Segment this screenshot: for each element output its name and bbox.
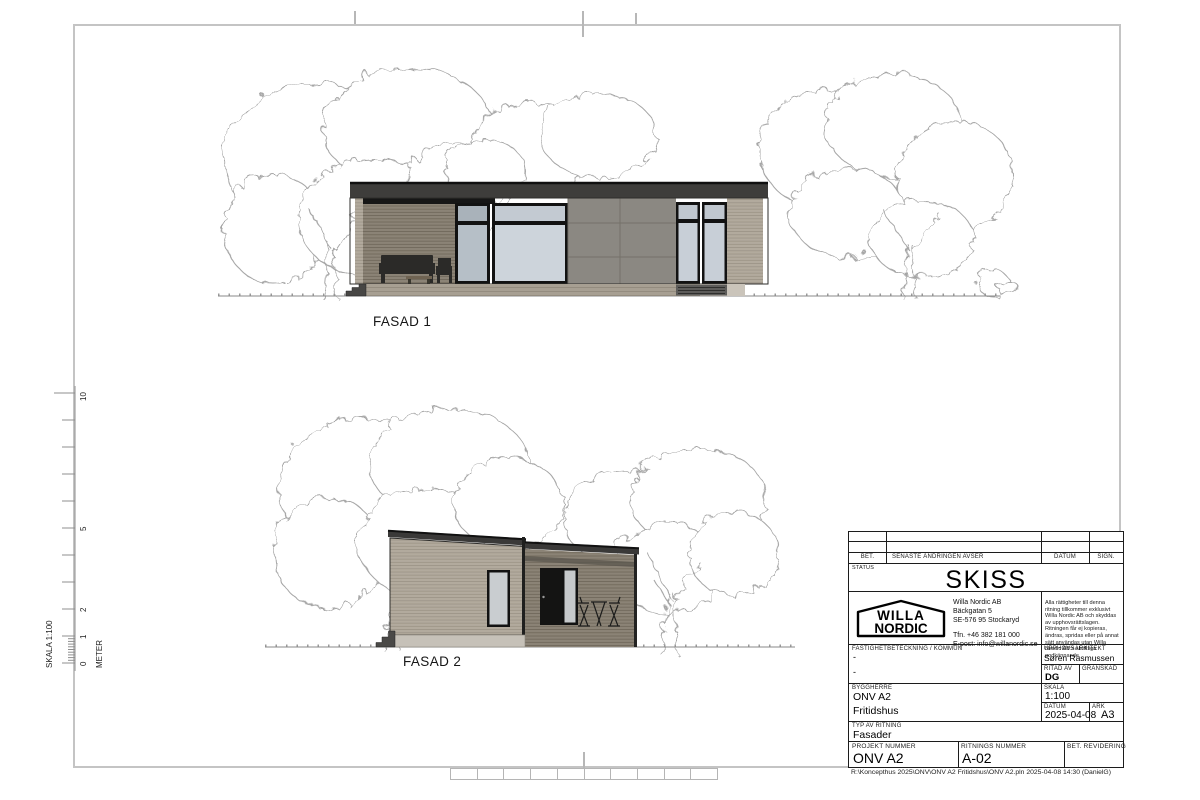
- ruler-unit-label: METER: [95, 640, 104, 668]
- revision-col-datum: DATUM: [1041, 554, 1089, 560]
- fasad-1-label: FASAD 1: [373, 314, 431, 329]
- company-email: E-post: info@willanordic.se: [953, 640, 1038, 649]
- entry-steps: [376, 631, 395, 647]
- window: [702, 202, 727, 284]
- ritningsnummer-label: RITNINGS NUMMER: [961, 743, 1026, 750]
- company-name: Willa Nordic AB: [953, 598, 1038, 607]
- ruler-tick-0: 0: [79, 661, 88, 666]
- ritningsnummer-value: A-02: [962, 750, 992, 766]
- fastighet-value-1: -: [853, 652, 856, 662]
- trim-mark: [583, 752, 585, 768]
- fasad-2-drawing: [230, 390, 830, 680]
- ruler-tick-10: 10: [79, 392, 88, 401]
- ruler-scale-label: SKALA 1:100: [45, 620, 54, 668]
- drawing-sheet: 10 5 2 1 0 METER SKALA 1:100: [0, 0, 1200, 800]
- bet-revidering-label: BET. REVIDERING: [1067, 743, 1126, 750]
- file-path-footer: R:\Koncepthus 2025\ONV\ONV A2 Fritidshus…: [840, 769, 1122, 776]
- trim-mark: [635, 13, 637, 24]
- fasad-1-house: [346, 182, 768, 296]
- title-block: BET. SENASTE ÄNDRINGEN AVSER DATUM SIGN.…: [848, 531, 1124, 768]
- fasad-2-label: FASAD 2: [403, 654, 461, 669]
- ruler-tick-1: 1: [79, 634, 88, 639]
- entry-door: [540, 568, 562, 625]
- sidelight-window: [562, 568, 578, 625]
- datum-value: 2025-04-08: [1045, 710, 1096, 721]
- ruler-tick-5: 5: [79, 526, 88, 531]
- revision-col-sign: SIGN.: [1089, 554, 1123, 560]
- fasad-1-drawing: [200, 40, 1020, 310]
- company-city: SE-576 95 Stockaryd: [953, 616, 1038, 625]
- company-phone: Tfn. +46 382 181 000: [953, 631, 1038, 640]
- fasad-2-house: [376, 530, 639, 647]
- corner-post: [634, 554, 637, 647]
- typ-value: Fasader: [853, 729, 892, 741]
- roof: [350, 182, 768, 198]
- foundation: [393, 635, 525, 647]
- revision-col-change: SENASTE ÄNDRINGEN AVSER: [892, 554, 984, 560]
- fastighet-value-2: -: [853, 667, 856, 677]
- door-handle: [542, 596, 544, 598]
- scale-ruler: 10 5 2 1 0 METER SKALA 1:100: [40, 378, 112, 678]
- graphic-scale-bar: [450, 768, 718, 780]
- ark-value: A3: [1101, 709, 1114, 721]
- ritad-av-value: DG: [1045, 672, 1059, 683]
- window: [455, 203, 490, 284]
- trim-mark: [582, 11, 584, 37]
- window: [492, 203, 568, 284]
- logo-text-2: NORDIC: [874, 621, 927, 636]
- fastighet-label: FASTIGHETBETECKNING / KOMMUN: [852, 646, 962, 652]
- willa-nordic-logo: WILLA NORDIC: [856, 598, 946, 638]
- granskad-label: GRANSKAD: [1082, 666, 1117, 672]
- revision-col-bet: BET.: [849, 554, 886, 560]
- status-value: SKISS: [849, 566, 1123, 595]
- projekt-label: PROJEKT NUMMER: [852, 743, 916, 750]
- panel-facade: [568, 198, 676, 284]
- upphovsarkitekt-label: UPPHOVSARKITEKT: [1044, 646, 1106, 652]
- entry-steps: [346, 284, 366, 296]
- window: [676, 202, 700, 284]
- byggherre-value-2: Fritidshus: [853, 705, 899, 717]
- ruler-tick-2: 2: [79, 607, 88, 612]
- byggherre-value-1: ONV A2: [853, 691, 891, 703]
- window: [487, 570, 510, 627]
- upphovsarkitekt-value: Søren Rasmussen: [1044, 653, 1114, 663]
- trim-mark: [354, 11, 356, 24]
- skala-value: 1:100: [1045, 691, 1070, 702]
- projekt-value: ONV A2: [853, 750, 904, 766]
- company-street: Bäckgatan 5: [953, 607, 1038, 616]
- company-address: Willa Nordic AB Bäckgatan 5 SE-576 95 St…: [953, 598, 1038, 649]
